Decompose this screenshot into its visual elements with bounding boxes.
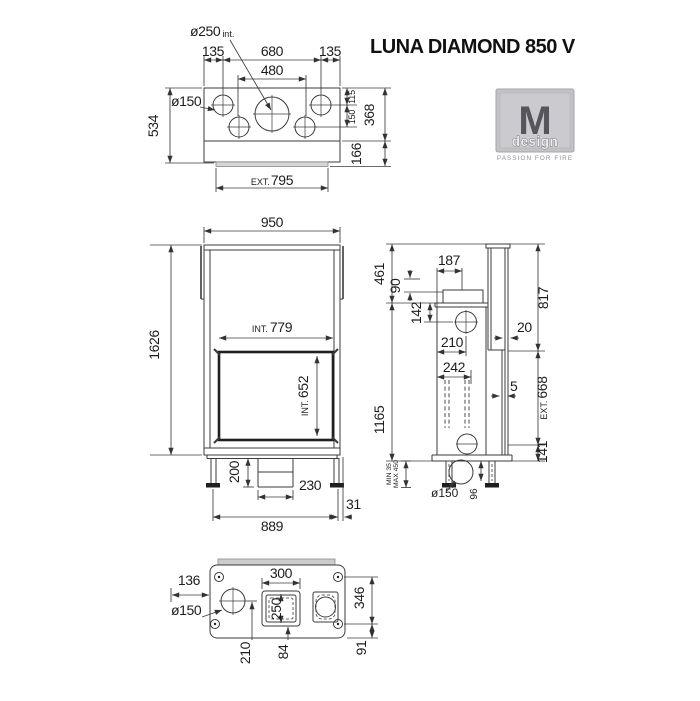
dim-889: 889 — [261, 518, 284, 534]
dim-210-side: 210 — [441, 334, 464, 350]
dim-90: 90 — [387, 278, 403, 293]
dim-300: 300 — [270, 565, 293, 581]
dim-817: 817 — [535, 286, 551, 309]
dim-1626: 1626 — [146, 330, 162, 360]
dim-84: 84 — [275, 644, 291, 659]
side-exhaust-circle — [449, 460, 473, 484]
dim-ext-668: EXT.668 — [534, 376, 550, 420]
fireplace-dimension-drawing: ø250int. 135 680 135 480 ø150 534 115 15… — [0, 0, 700, 701]
dim-680: 680 — [261, 43, 284, 59]
dim-461: 461 — [371, 262, 387, 285]
dim-max-adjust: MAX 450 — [393, 460, 400, 488]
dim-141: 141 — [534, 440, 550, 463]
dim-166: 166 — [348, 142, 364, 165]
front-view: 950 1626 INT.779 INT.652 200 230 31 889 — [146, 214, 361, 534]
bottom-vent-leader — [202, 610, 222, 617]
logo-tagline: PASSION FOR FIRE — [497, 155, 573, 162]
dim-ext-795: EXT.795 — [251, 172, 294, 188]
side-internal-channels — [445, 380, 469, 428]
dim-115: 115 — [347, 90, 357, 104]
top-view: ø250int. 135 680 135 480 ø150 534 115 15… — [145, 23, 391, 192]
dim-230: 230 — [299, 477, 322, 493]
side-top-box — [443, 290, 483, 303]
dim-5: 5 — [510, 378, 518, 394]
dim-242: 242 — [443, 359, 466, 375]
dim-int-652: INT.652 — [295, 375, 311, 416]
front-foot-left — [206, 483, 220, 488]
side-view: 461 1165 90 142 187 210 242 20 5 817 EXT… — [371, 244, 551, 500]
vent-leader-line — [200, 107, 215, 110]
dim-250: 250 — [268, 597, 284, 620]
dim-480: 480 — [261, 62, 284, 78]
dim-int-779: INT.779 — [252, 319, 293, 335]
front-view-dim-lines — [150, 227, 352, 521]
dim-1165: 1165 — [371, 405, 387, 434]
dim-210-bottom: 210 — [237, 641, 253, 664]
dim-368: 368 — [361, 103, 377, 126]
dim-96: 96 — [469, 488, 480, 500]
dim-135-right: 135 — [319, 43, 342, 59]
dim-950: 950 — [261, 214, 284, 230]
top-view-base-strip — [216, 162, 328, 167]
front-foot-right — [330, 483, 344, 488]
dim-200: 200 — [226, 460, 242, 483]
top-view-flue-circles — [211, 93, 333, 139]
dim-136: 136 — [178, 572, 201, 588]
side-view-labels: 461 1165 90 142 187 210 242 20 5 817 EXT… — [371, 252, 551, 500]
dim-vent-diameter-bottom: ø150 — [171, 602, 202, 618]
dim-142: 142 — [408, 301, 424, 324]
logo-name: design — [512, 134, 559, 149]
dim-min-adjust: MIN 35 — [386, 463, 393, 485]
side-foot-right — [485, 483, 499, 488]
dim-flue-diameter: ø250int. — [190, 23, 234, 39]
dim-31: 31 — [346, 496, 361, 512]
dim-20: 20 — [517, 319, 532, 335]
dim-534: 534 — [145, 114, 161, 137]
dim-91: 91 — [353, 640, 369, 655]
dim-vent-diameter: ø150 — [171, 93, 202, 109]
brand-logo: M design PASSION FOR FIRE — [496, 89, 574, 162]
page-title: LUNA DIAMOND 850 V — [370, 36, 576, 58]
front-leg-left — [211, 459, 216, 484]
front-leg-right — [334, 459, 339, 484]
dim-135-left: 135 — [202, 43, 225, 59]
dim-outlet-diameter: ø150 — [431, 486, 459, 500]
technical-drawing-page: ø250int. 135 680 135 480 ø150 534 115 15… — [0, 0, 700, 701]
glass-window — [219, 352, 333, 440]
front-view-labels: 950 1626 INT.779 INT.652 200 230 31 889 — [146, 214, 361, 534]
bottom-view-labels: 136 ø150 300 250 346 91 210 84 — [171, 565, 369, 664]
front-view-body — [201, 245, 344, 488]
bottom-view: 136 ø150 300 250 346 91 210 84 — [171, 559, 378, 664]
header: LUNA DIAMOND 850 V M design PASSION FOR … — [370, 36, 576, 162]
dim-150: 150 — [347, 110, 357, 125]
dim-187: 187 — [438, 252, 461, 268]
dim-346: 346 — [351, 586, 367, 609]
